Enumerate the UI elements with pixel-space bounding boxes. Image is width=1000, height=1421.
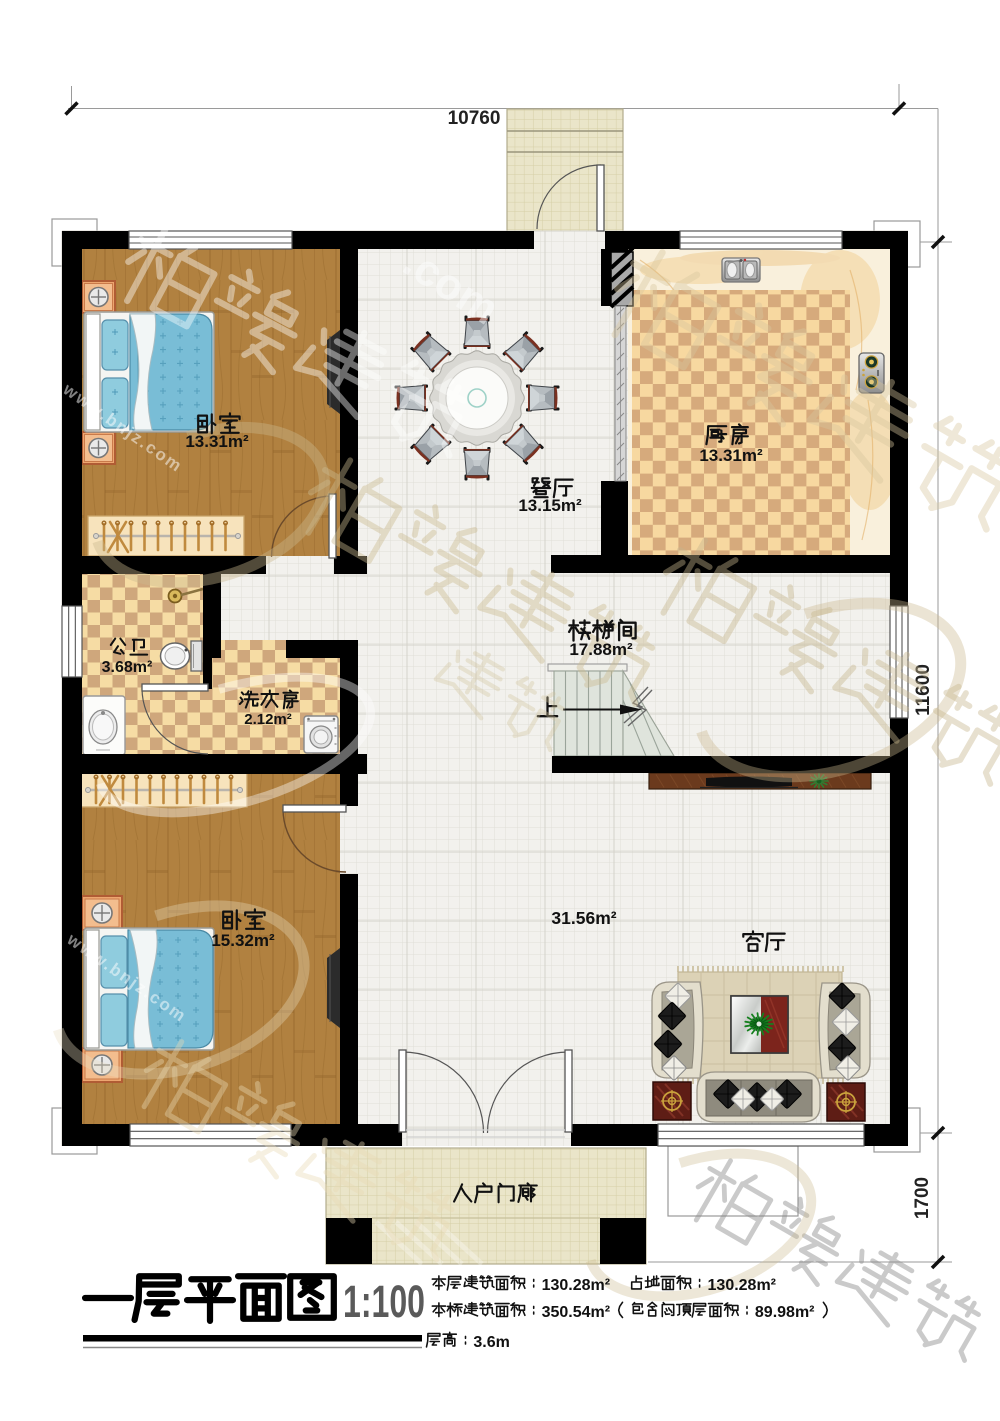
svg-text:130.28m²: 130.28m² [708,1277,777,1294]
svg-text:3.68m²: 3.68m² [102,659,153,676]
svg-text:13.31m²: 13.31m² [185,432,249,451]
svg-text:130.28m²: 130.28m² [542,1277,611,1294]
svg-text:3.6m: 3.6m [473,1334,509,1351]
svg-text:31.56m²: 31.56m² [551,908,616,928]
svg-text:13.15m²: 13.15m² [518,496,582,515]
svg-text:350.54m²: 350.54m² [542,1304,611,1321]
svg-text:1700: 1700 [912,1177,933,1219]
svg-text:15.32m²: 15.32m² [211,931,275,950]
svg-text:17.88m²: 17.88m² [569,640,633,659]
svg-text:89.98m²: 89.98m² [755,1304,815,1321]
svg-text:10760: 10760 [448,108,501,129]
svg-text:2.12m²: 2.12m² [244,711,292,728]
svg-text:13.31m²: 13.31m² [699,446,763,465]
svg-text:1:100: 1:100 [343,1276,425,1327]
